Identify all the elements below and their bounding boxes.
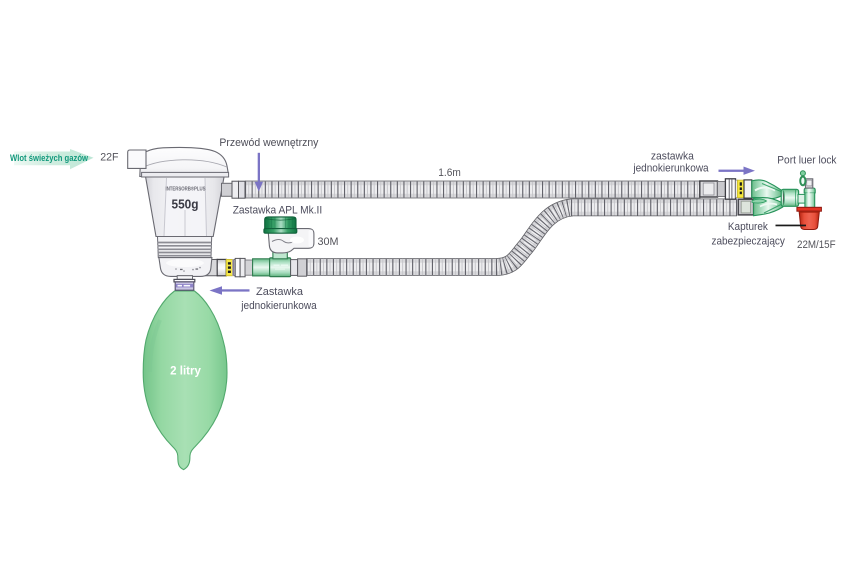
svg-text:Wlot świeżych gazów: Wlot świeżych gazów bbox=[10, 153, 88, 164]
svg-text:Przewód wewnętrzny: Przewód wewnętrzny bbox=[219, 137, 318, 149]
svg-text:INTERSORB®PLUS: INTERSORB®PLUS bbox=[166, 186, 206, 193]
svg-text:jednokierunkowa: jednokierunkowa bbox=[240, 300, 317, 312]
svg-text:22F: 22F bbox=[100, 152, 119, 164]
svg-text:Zastawka APL Mk.II: Zastawka APL Mk.II bbox=[233, 205, 323, 217]
svg-text:1.6m: 1.6m bbox=[438, 167, 461, 179]
svg-text:zastawka: zastawka bbox=[651, 151, 695, 163]
svg-text:Kapturek: Kapturek bbox=[728, 221, 768, 233]
svg-text:22M/15F: 22M/15F bbox=[797, 239, 836, 251]
svg-text:jednokierunkowa: jednokierunkowa bbox=[632, 163, 709, 175]
svg-text:2 litry: 2 litry bbox=[170, 366, 201, 378]
svg-text:550g: 550g bbox=[172, 198, 199, 212]
svg-text:Zastawka: Zastawka bbox=[256, 286, 304, 298]
svg-text:Port luer lock: Port luer lock bbox=[777, 155, 837, 167]
svg-text:zabezpieczający: zabezpieczający bbox=[711, 236, 785, 248]
svg-text:30M: 30M bbox=[318, 236, 339, 248]
